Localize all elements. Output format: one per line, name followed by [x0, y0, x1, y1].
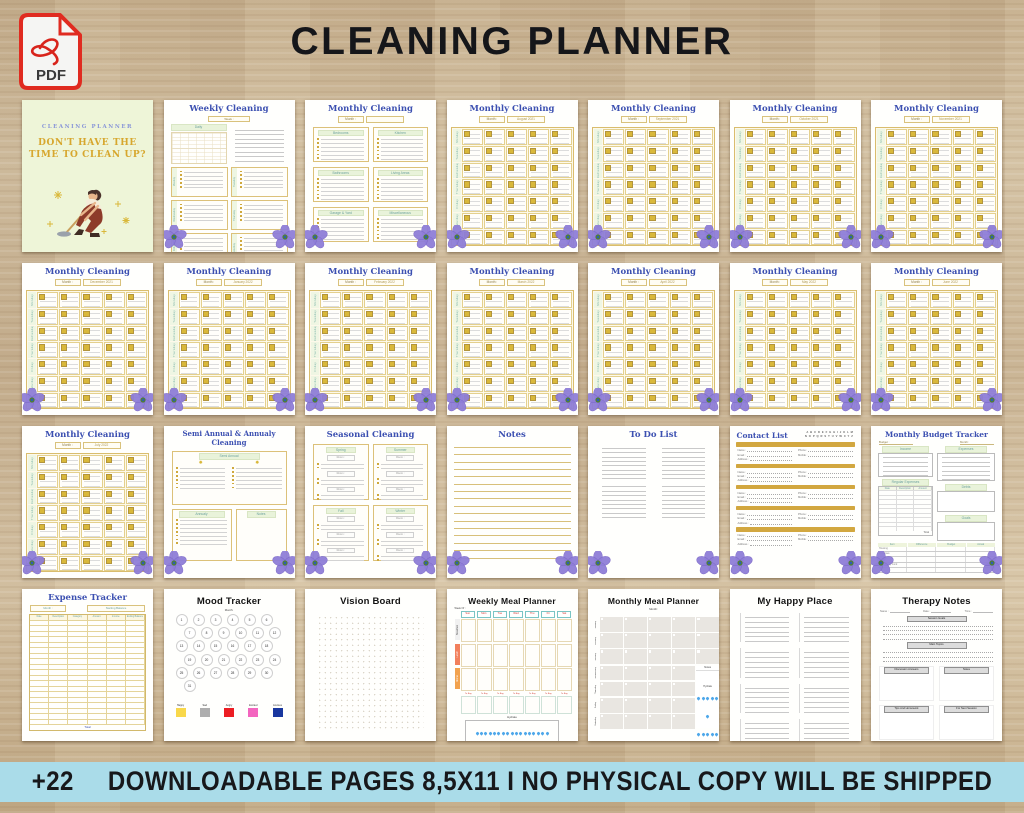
table-cell	[937, 557, 966, 561]
calendar-cell	[670, 393, 691, 409]
rule-line	[672, 193, 688, 194]
rule-line	[836, 373, 852, 374]
calendar-cell	[37, 309, 58, 325]
season-name: Spring	[326, 447, 356, 454]
rule-line	[84, 306, 100, 307]
day-header: Wed	[509, 611, 523, 618]
rule-line	[181, 368, 197, 369]
rule-line	[389, 306, 405, 307]
flower-decoration	[555, 551, 578, 578]
date-square	[552, 165, 558, 171]
rule-line	[62, 519, 78, 520]
calendar-cell	[670, 292, 691, 308]
day-name: Sunday	[595, 621, 597, 628]
date-square	[389, 395, 395, 401]
rule-line	[84, 498, 100, 499]
rule-line	[977, 222, 993, 223]
page-title: Monthly Cleaning	[164, 263, 295, 277]
date-square	[269, 344, 275, 350]
rule-line	[321, 495, 364, 496]
footer-text: DOWNLOADABLE PAGES 8,5X11 I NO PHYSICAL …	[108, 766, 992, 797]
purple-flower-icon	[447, 551, 470, 575]
task-line	[180, 520, 227, 521]
calendar-cell	[647, 129, 668, 145]
rule-line	[769, 306, 785, 307]
water-drop-icon	[710, 697, 714, 701]
calendar-cell	[59, 342, 80, 358]
month-value: October 2021	[790, 116, 828, 123]
rule-line	[106, 553, 122, 554]
rule-line	[62, 318, 78, 319]
rule-line	[411, 323, 427, 324]
rule-line	[203, 406, 219, 407]
day-row-label: Tuesday	[170, 309, 178, 325]
day-name: Tuesday	[596, 310, 600, 323]
rule-line	[769, 176, 785, 177]
day-row-label: Wednesday	[28, 489, 36, 505]
date-square	[464, 165, 470, 171]
page-title: Notes	[447, 426, 578, 440]
calendar-cell	[528, 326, 549, 342]
date-square	[247, 378, 253, 384]
task-line	[381, 139, 424, 140]
date-square	[791, 294, 797, 300]
rule-line	[367, 339, 383, 340]
rule-line	[531, 172, 547, 173]
rule-line	[381, 480, 424, 481]
date-square	[605, 215, 611, 221]
rule-line	[181, 373, 197, 374]
calendar-cell	[245, 326, 266, 342]
calendar-cell	[953, 213, 974, 229]
journal-block	[799, 684, 851, 713]
month-label: Month :	[338, 279, 364, 286]
todo-line	[662, 508, 706, 509]
rule-line	[367, 301, 383, 302]
month-label: Month :	[762, 116, 788, 123]
rule-line	[836, 352, 852, 353]
summary-row	[878, 568, 995, 573]
meal-cell	[525, 668, 539, 691]
calendar-cell	[908, 292, 929, 308]
journal-line	[804, 697, 849, 698]
task-line	[180, 536, 227, 537]
date-square	[835, 344, 841, 350]
month-label: Month :	[904, 279, 930, 286]
rule-line	[911, 239, 927, 240]
calendar-cell	[953, 393, 974, 409]
page-title: Monthly Meal Planner	[588, 589, 719, 606]
total-label: Total	[879, 531, 932, 535]
calendar-cell	[975, 196, 996, 212]
rule-line	[84, 536, 100, 537]
todo-line	[662, 486, 706, 487]
calendar-cell	[692, 163, 713, 179]
table-cell	[879, 523, 897, 527]
mood-day-circle: 29	[244, 667, 256, 679]
rule-line	[508, 172, 524, 173]
rule-line	[411, 373, 427, 374]
table-cell	[879, 496, 897, 500]
rule-line	[628, 222, 644, 223]
flower-decoration	[305, 551, 328, 578]
calendar-cell	[767, 309, 788, 325]
purple-flower-icon	[22, 551, 45, 575]
field-line	[750, 481, 792, 482]
rule-line	[321, 484, 364, 485]
table-row	[879, 504, 932, 509]
calendar-cell	[975, 342, 996, 358]
field-line	[747, 451, 792, 452]
date-square	[411, 361, 417, 367]
rule-line	[553, 318, 569, 319]
rule-line	[933, 385, 949, 386]
rule-line	[225, 385, 241, 386]
date-square	[769, 131, 775, 137]
date-square	[128, 524, 134, 530]
task-line	[180, 476, 226, 477]
rule-line	[40, 519, 56, 520]
rule-line	[791, 356, 807, 357]
rule-line	[464, 160, 480, 161]
calendar-cell	[692, 196, 713, 212]
goal-line	[883, 639, 993, 640]
rule-line	[181, 356, 197, 357]
meal-cell	[461, 644, 475, 667]
rule-line	[411, 335, 427, 336]
day-name: Monday	[738, 294, 742, 306]
rule-line	[672, 176, 688, 177]
contact-field: Phone :	[798, 533, 853, 537]
date-square	[791, 131, 797, 137]
meal-cell	[541, 619, 555, 642]
field-line	[808, 451, 852, 452]
month-value: June 2022	[932, 279, 970, 286]
date-square	[464, 378, 470, 384]
calendar-cell	[930, 393, 951, 409]
table-cell	[914, 491, 932, 495]
calendar-cell	[267, 342, 288, 358]
left-fields: Name :Email :Address :	[738, 490, 793, 503]
rule-line	[694, 193, 710, 194]
calendar-cell	[886, 129, 907, 145]
day-name: Wednesday	[455, 163, 459, 179]
date-square	[508, 361, 514, 367]
todo-line	[602, 474, 646, 475]
date-square	[932, 215, 938, 221]
journal-line	[804, 667, 849, 668]
rule-line	[389, 373, 405, 374]
rule-line	[62, 536, 78, 537]
task-line	[321, 147, 364, 148]
page-monthly-calendar-august-2021: Monthly CleaningMonth :August 2021Monday…	[447, 100, 578, 252]
date-square	[181, 328, 187, 334]
day-row-label: Thursday	[736, 342, 744, 358]
date-square	[128, 328, 134, 334]
rule-line	[791, 222, 807, 223]
budget-label: Budget :	[879, 440, 913, 445]
rule-line	[486, 318, 502, 319]
table-cell	[88, 670, 107, 675]
rule-line	[650, 339, 666, 340]
flower-decoration	[696, 225, 719, 252]
rule-line	[933, 222, 949, 223]
calendar-cell	[930, 359, 951, 375]
rule-line	[911, 222, 927, 223]
day-row-label: Monday	[877, 292, 885, 308]
rule-line	[531, 373, 547, 374]
meal-cell	[461, 619, 475, 642]
calendar-cell	[37, 359, 58, 375]
contact-fields: Name :Email :Address :Phone :Mobile :	[738, 490, 853, 503]
rule-line	[628, 210, 644, 211]
day-name: Monday	[173, 177, 176, 186]
day-name: Tuesday	[313, 310, 317, 323]
calendar-cell	[930, 196, 951, 212]
date-square	[977, 311, 983, 317]
rule-line	[531, 189, 547, 190]
contact-field: Address :	[738, 457, 793, 461]
rule-line	[225, 390, 241, 391]
rule-line	[40, 481, 56, 482]
calendar-cell	[267, 326, 288, 342]
footer-banner: +22 DOWNLOADABLE PAGES 8,5X11 I NO PHYSI…	[0, 762, 1024, 802]
room-field: Room :	[386, 471, 414, 477]
calendar-cell	[37, 455, 58, 471]
calendar-cell	[59, 505, 80, 521]
calendar-cell	[767, 146, 788, 162]
field-label: Address :	[738, 543, 749, 546]
legend-item: Excited	[248, 704, 258, 717]
flower-decoration	[730, 388, 753, 415]
flower-decoration	[588, 551, 611, 578]
todo-line	[602, 495, 646, 496]
calendar-cell	[484, 230, 505, 246]
table-cell	[68, 626, 87, 631]
rule-line	[606, 210, 622, 211]
date-square	[955, 294, 961, 300]
todo-line	[662, 470, 706, 471]
table-cell	[914, 518, 932, 522]
month-value: March 2022	[507, 279, 545, 286]
month-field-row: Month :June 2022	[871, 279, 1002, 286]
rule-line	[411, 339, 427, 340]
table-cell	[908, 557, 937, 561]
date-square	[83, 491, 89, 497]
date-square	[932, 328, 938, 334]
task-line	[184, 250, 223, 251]
field-line	[808, 494, 852, 495]
contact-field: Address :	[738, 499, 793, 503]
task-line	[244, 220, 283, 221]
journal-line	[745, 641, 790, 642]
rule-line	[747, 172, 763, 173]
date-square	[389, 294, 395, 300]
meal-cell	[624, 682, 647, 697]
contact-field: Name :	[738, 511, 793, 515]
month-field-row: Month :January 2022	[164, 279, 295, 286]
date-square	[694, 294, 700, 300]
table-row	[30, 697, 145, 703]
meal-cell	[493, 668, 507, 691]
rule-line	[694, 318, 710, 319]
mood-legend: HappySadAngryExcitedAnxious	[176, 704, 283, 717]
date-square	[649, 344, 655, 350]
date-square	[83, 395, 89, 401]
task-line	[184, 217, 223, 218]
rule-line	[128, 373, 144, 374]
table-cell	[49, 648, 68, 653]
date-square	[605, 344, 611, 350]
rule-line	[486, 301, 502, 302]
rule-line	[814, 176, 830, 177]
calendar-cell	[908, 196, 929, 212]
date-square	[910, 361, 916, 367]
date-square	[627, 181, 633, 187]
rule-line	[911, 339, 927, 340]
rule-line	[128, 498, 144, 499]
date-square	[128, 294, 134, 300]
rule-line	[836, 143, 852, 144]
calendar-cell	[647, 230, 668, 246]
rule-line	[672, 318, 688, 319]
date-square	[464, 294, 470, 300]
meal-cell	[461, 668, 475, 691]
rule-line	[508, 318, 524, 319]
purple-flower-icon	[838, 551, 861, 575]
date-square	[649, 378, 655, 384]
title-line1: Semi Annual & Annualy	[182, 429, 275, 438]
rule-line	[769, 368, 785, 369]
rule-line	[62, 402, 78, 403]
journal-line	[745, 632, 790, 633]
rule-line	[650, 368, 666, 369]
rule-line	[769, 227, 785, 228]
date-square	[61, 524, 67, 530]
rule-line	[464, 210, 480, 211]
calendar-cell	[550, 326, 571, 342]
table-cell	[107, 626, 126, 631]
page-title: Monthly Cleaning	[588, 263, 719, 277]
page-monthly-calendar-july-2022: Monthly CleaningMonth :July 2022MondayTu…	[22, 426, 153, 578]
rule-line	[531, 356, 547, 357]
journal-line	[745, 697, 790, 698]
calendar-cell	[104, 326, 125, 342]
weekday-boxes: MondayTuesdayWednesdayThursdayFridaySatu…	[171, 167, 288, 252]
todo-line	[602, 500, 646, 501]
date-square	[83, 294, 89, 300]
rule-line	[955, 189, 971, 190]
calendar-cell	[886, 146, 907, 162]
task-line	[244, 209, 283, 210]
calendar-cell	[528, 163, 549, 179]
rule-line	[553, 323, 569, 324]
calendar-cell	[320, 292, 341, 308]
rule-line	[836, 301, 852, 302]
rule-line	[381, 525, 424, 526]
calendar-cell	[409, 292, 430, 308]
rule-line	[203, 301, 219, 302]
flower-decoration	[272, 388, 295, 415]
rule-line	[464, 339, 480, 340]
date-square	[464, 215, 470, 221]
table-cell	[30, 681, 49, 686]
meal-name: Dinner	[456, 675, 459, 682]
rule-line	[955, 318, 971, 319]
rule-line	[933, 243, 949, 244]
rule-line	[769, 406, 785, 407]
calendar-cell	[953, 179, 974, 195]
contact-fields: Name :Email :Address :Phone :Mobile :	[738, 533, 853, 546]
date-square	[203, 311, 209, 317]
rule-line	[650, 143, 666, 144]
rule-line	[977, 172, 993, 173]
rule-line	[106, 323, 122, 324]
journal-line	[804, 652, 849, 653]
page-therapy-notes: Therapy Notes Name :Date :Time :Session …	[871, 589, 1002, 741]
field-label: Mobile :	[798, 454, 807, 457]
rule-line	[933, 306, 949, 307]
rule-line	[486, 406, 502, 407]
day-name: Tuesday	[455, 310, 459, 323]
date-square	[910, 181, 916, 187]
table-cell	[68, 720, 87, 725]
checklist-column: ✹	[229, 460, 286, 489]
rule-line	[225, 323, 241, 324]
page-title: Weekly Meal Planner	[447, 589, 578, 606]
rule-line	[62, 469, 78, 470]
column-header: Description	[897, 487, 915, 491]
page-title: Seasonal Cleaning	[305, 426, 436, 440]
journal-line	[745, 667, 790, 668]
day-name: Friday	[455, 362, 459, 372]
to-buy-row: To BuyTo BuyTo BuyTo BuyTo BuyTo BuyTo B…	[455, 693, 572, 714]
rule-line	[531, 402, 547, 403]
calendar-cell	[603, 129, 624, 145]
rule-line	[270, 356, 286, 357]
rule-line	[933, 368, 949, 369]
date-square	[955, 344, 961, 350]
day-row-label: Thursday	[594, 179, 602, 195]
purple-flower-icon	[555, 388, 578, 412]
contact-field: Email :	[738, 474, 793, 478]
journal-line	[804, 733, 849, 734]
budget-fields: Budget : Month :	[879, 440, 994, 445]
calendar-cell	[670, 129, 691, 145]
rule-line	[911, 205, 927, 206]
calendar-cell	[387, 342, 408, 358]
calendar-cell	[789, 376, 810, 392]
meal-cell	[624, 617, 647, 632]
date-square	[344, 344, 350, 350]
meal-cell	[509, 644, 523, 667]
calendar-cell	[462, 146, 483, 162]
rule-line	[389, 390, 405, 391]
rule-line	[203, 339, 219, 340]
month-label: Month :	[479, 279, 505, 286]
water-drop-icon	[519, 731, 523, 735]
rule-line	[955, 323, 971, 324]
rule-line	[84, 553, 100, 554]
rule-line	[84, 515, 100, 516]
rule-line	[911, 406, 927, 407]
rule-line	[248, 318, 264, 319]
mood-day-circle: 19	[184, 654, 196, 666]
rule-line	[345, 385, 361, 386]
rule-line	[84, 464, 100, 465]
table-cell	[88, 703, 107, 708]
mood-day-circle: 2	[193, 614, 205, 626]
